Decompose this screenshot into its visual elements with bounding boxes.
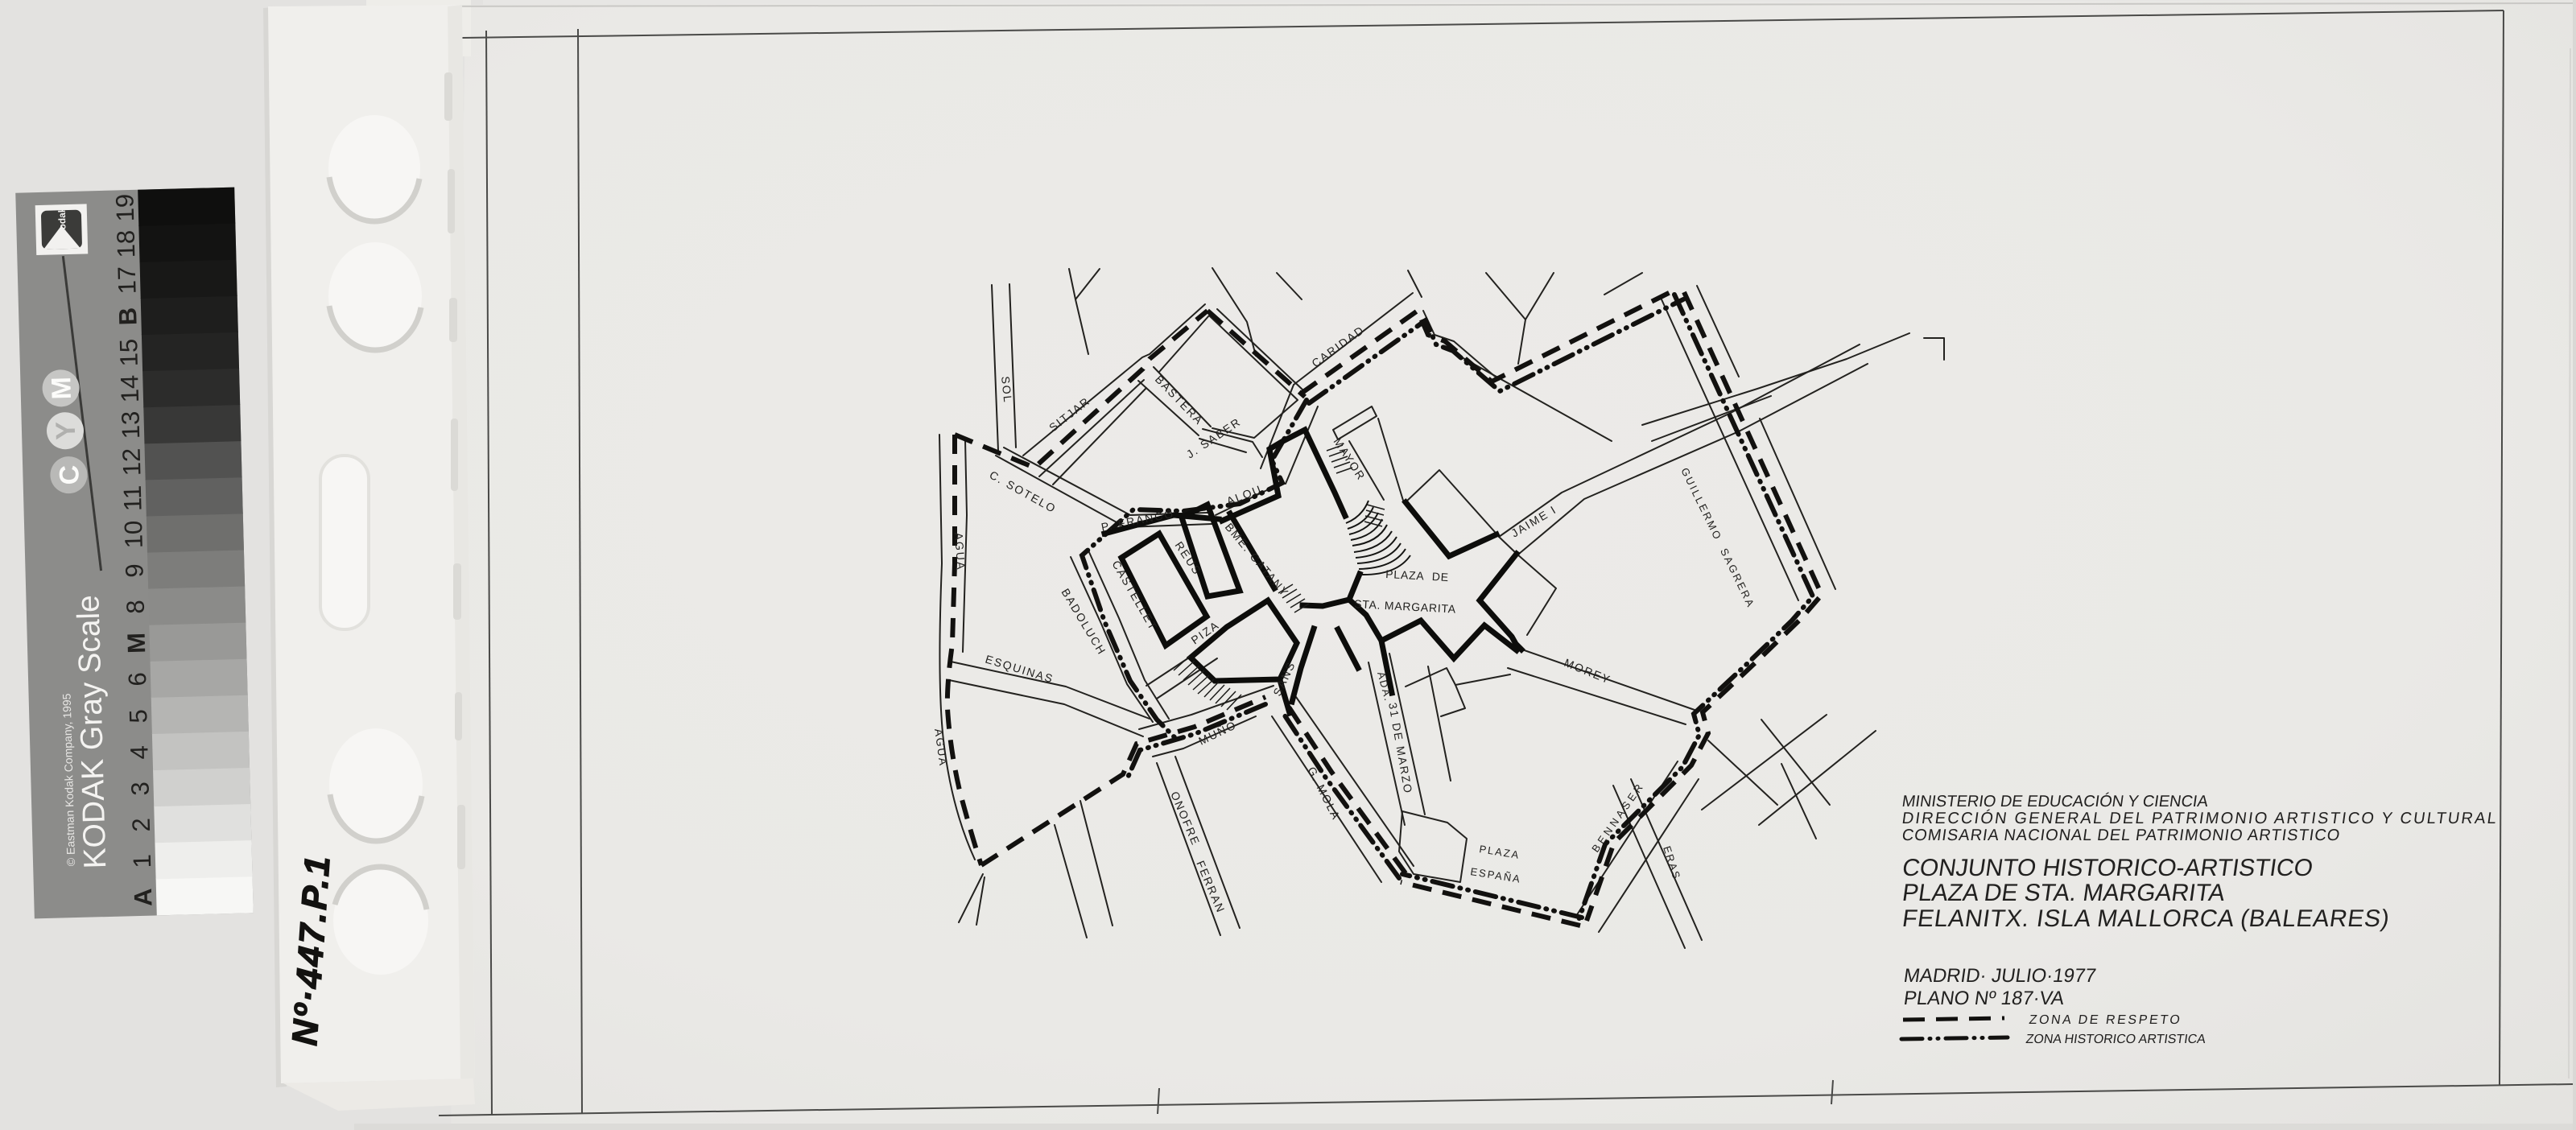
svg-text:13: 13	[116, 410, 145, 439]
svg-text:CONJUNTO HISTORICO-ARTISTICO: CONJUNTO HISTORICO-ARTISTICO	[1901, 855, 2314, 881]
svg-text:PLANO Nº 187·VA: PLANO Nº 187·VA	[1902, 988, 2066, 1009]
svg-text:PLAZA DE STA. MARGARITA: PLAZA DE STA. MARGARITA	[1901, 880, 2227, 906]
svg-text:FELANITX. ISLA MALLORCA (BALEA: FELANITX. ISLA MALLORCA (BALEARES)	[1901, 905, 2392, 932]
svg-text:ZONA DE RESPETO: ZONA DE RESPETO	[2028, 1012, 2182, 1027]
svg-text:ZONA HISTORICO ARTISTICA: ZONA HISTORICO ARTISTICA	[2025, 1032, 2207, 1046]
svg-text:5: 5	[124, 709, 152, 724]
svg-text:COMISARIA NACIONAL DEL PATRIMO: COMISARIA NACIONAL DEL PATRIMONIO ARTIST…	[1901, 827, 2342, 844]
svg-text:AGUA: AGUA	[952, 532, 968, 571]
svg-text:6: 6	[123, 672, 151, 687]
svg-text:17: 17	[113, 266, 142, 294]
svg-text:DIRECCIÓN GENERAL DEL PATRIMON: DIRECCIÓN GENERAL DEL PATRIMONIO ARTISTI…	[1901, 809, 2499, 827]
svg-text:9: 9	[120, 563, 148, 578]
svg-text:B: B	[114, 307, 142, 325]
svg-text:11: 11	[118, 485, 147, 511]
svg-text:1: 1	[128, 854, 156, 868]
svg-text:19: 19	[110, 193, 139, 221]
svg-text:MINISTERIO DE EDUCACIÓN Y CIEN: MINISTERIO DE EDUCACIÓN Y CIENCIA	[1901, 792, 2210, 810]
svg-text:15: 15	[114, 338, 143, 366]
svg-text:Y: Y	[51, 421, 82, 440]
svg-text:M: M	[46, 377, 77, 400]
svg-text:MADRID· JULIO·1977: MADRID· JULIO·1977	[1902, 965, 2097, 987]
svg-text:M: M	[122, 633, 151, 654]
svg-text:2: 2	[127, 818, 155, 832]
svg-text:Kodak: Kodak	[56, 207, 68, 237]
svg-text:18: 18	[112, 229, 141, 258]
svg-text:12: 12	[118, 447, 147, 476]
svg-text:KODAK Gray Scale: KODAK Gray Scale	[71, 595, 113, 869]
svg-text:C: C	[54, 464, 85, 485]
svg-text:8: 8	[122, 600, 150, 614]
svg-text:14: 14	[115, 374, 144, 402]
svg-text:3: 3	[126, 782, 154, 796]
svg-text:4: 4	[125, 745, 153, 760]
svg-text:10: 10	[119, 520, 148, 548]
svg-text:A: A	[129, 888, 158, 906]
